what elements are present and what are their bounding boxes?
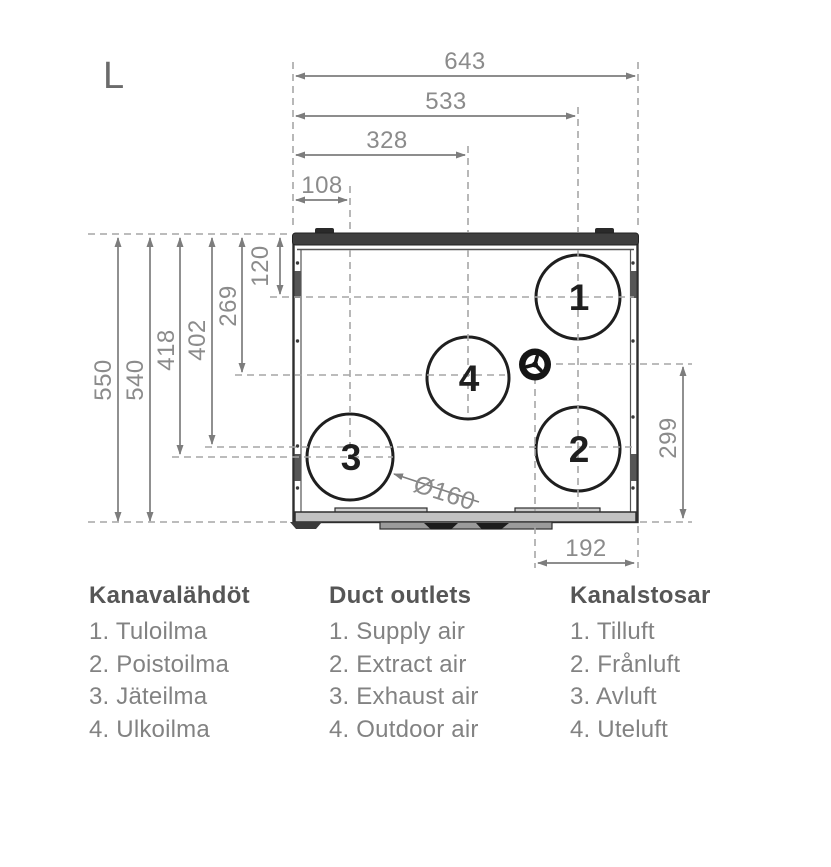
technical-drawing-page: L bbox=[0, 0, 831, 867]
legend-item: 4. Ulkoilma bbox=[89, 714, 250, 747]
legend-item: 1. Supply air bbox=[329, 616, 479, 649]
dim-label-192: 192 bbox=[565, 535, 607, 562]
legend-item: 4. Uteluft bbox=[570, 714, 711, 747]
legend-item: 3. Jäteilma bbox=[89, 681, 250, 714]
legend-item: 2. Extract air bbox=[329, 649, 479, 682]
legend-heading-english: Duct outlets bbox=[329, 582, 479, 610]
outlet-number-1: 1 bbox=[569, 277, 590, 318]
duct-outlet-diagram: L bbox=[0, 0, 831, 578]
dim-label-269: 269 bbox=[215, 285, 242, 327]
legend-column-finnish: Kanavalähdöt 1. Tuloilma 2. Poistoilma 3… bbox=[89, 582, 250, 746]
legend-item: 1. Tuloilma bbox=[89, 616, 250, 649]
legend-column-swedish: Kanalstosar 1. Tilluft 2. Frånluft 3. Av… bbox=[570, 582, 711, 746]
legend-item: 2. Frånluft bbox=[570, 649, 711, 682]
dim-label-533: 533 bbox=[425, 88, 467, 115]
legend-heading-swedish: Kanalstosar bbox=[570, 582, 711, 610]
outlet-number-4: 4 bbox=[459, 358, 480, 399]
legend-item: 3. Avluft bbox=[570, 681, 711, 714]
dim-label-418: 418 bbox=[153, 329, 180, 371]
variant-label: L bbox=[103, 55, 124, 97]
dim-label-540: 540 bbox=[122, 359, 149, 401]
legend-item: 3. Exhaust air bbox=[329, 681, 479, 714]
dim-label-643: 643 bbox=[444, 48, 486, 75]
legend-item: 2. Poistoilma bbox=[89, 649, 250, 682]
dim-label-120: 120 bbox=[247, 245, 274, 287]
dim-label-108: 108 bbox=[301, 172, 343, 199]
dim-label-299: 299 bbox=[655, 417, 682, 459]
dim-label-328: 328 bbox=[366, 127, 408, 154]
fan-impeller-icon bbox=[519, 349, 551, 381]
outlet-number-3: 3 bbox=[341, 437, 362, 478]
legend-item: 1. Tilluft bbox=[570, 616, 711, 649]
outlet-number-2: 2 bbox=[569, 429, 590, 470]
dim-label-402: 402 bbox=[184, 319, 211, 361]
legend-item: 4. Outdoor air bbox=[329, 714, 479, 747]
dim-label-550: 550 bbox=[90, 359, 117, 401]
legend-column-english: Duct outlets 1. Supply air 2. Extract ai… bbox=[329, 582, 479, 746]
top-cap-bar bbox=[293, 233, 639, 245]
legend-heading-finnish: Kanavalähdöt bbox=[89, 582, 250, 610]
